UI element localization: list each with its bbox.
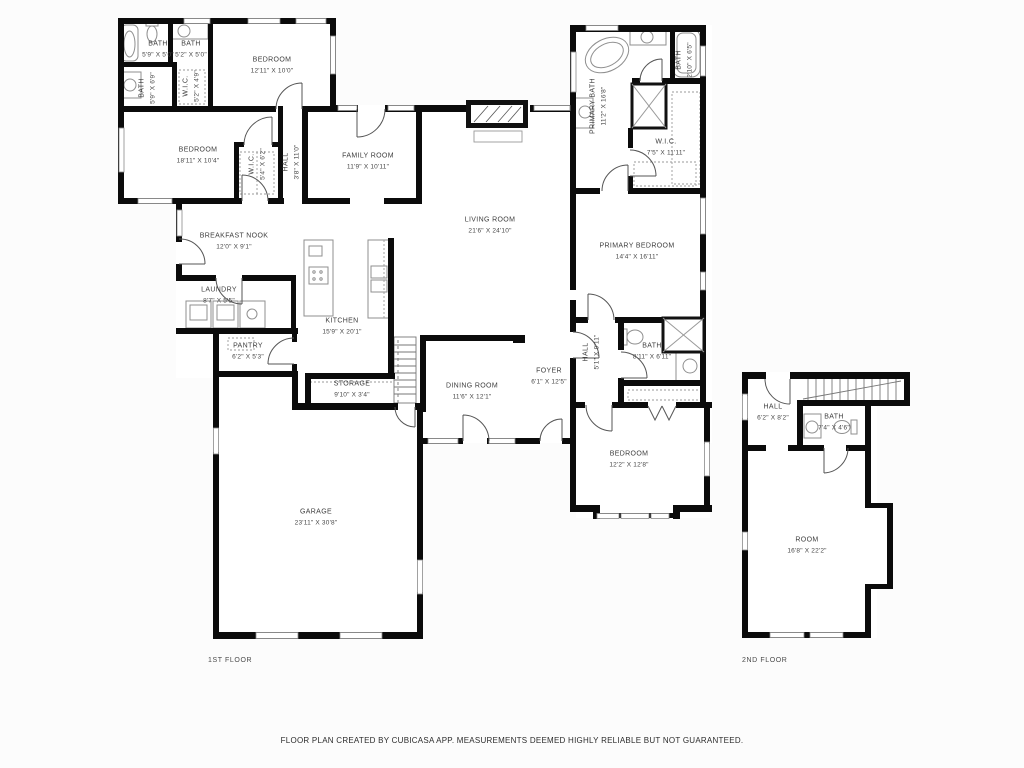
floor1-stairs — [394, 337, 416, 403]
floor-plan-drawing — [0, 0, 1024, 768]
room-label-bedroom-1: BEDROOM 12'11" X 10'0" — [251, 56, 294, 77]
room-label-family-room: FAMILY ROOM 11'9" X 10'11" — [342, 152, 394, 173]
room-label-bath-5: BATH 8'11" X 6'11" — [633, 342, 671, 363]
room-label-hall-1: HALL 3'8" X 11'0" — [282, 144, 303, 179]
room-label-room-2f: ROOM 16'8" X 22'2" — [787, 536, 826, 557]
disclaimer-text: FLOOR PLAN CREATED BY CUBICASA APP. MEAS… — [0, 736, 1024, 745]
room-label-living-room: LIVING ROOM 21'6" X 24'10" — [465, 216, 516, 237]
room-label-wic-1: W.I.C. 5'2" X 4'9" — [182, 70, 203, 102]
room-label-hall-2f: HALL 6'2" X 8'2" — [757, 403, 789, 424]
room-label-bath-2f: BATH 7'4" X 4'6" — [818, 413, 850, 434]
fireplace — [466, 100, 528, 142]
room-label-bath-2: BATH 5'2" X 5'0" — [175, 40, 207, 61]
floor2-caption: 2ND FLOOR — [742, 657, 787, 664]
room-label-laundry: LAUNDRY 8'7" X 5'5" — [201, 286, 237, 307]
room-label-wic-2: W.I.C. 5'4" X 6'2" — [248, 148, 269, 180]
room-label-bedroom-2: BEDROOM 18'11" X 10'4" — [177, 146, 220, 167]
room-label-primary-bedroom: PRIMARY BEDROOM 14'4" X 16'11" — [599, 242, 674, 263]
room-label-breakfast-nook: BREAKFAST NOOK 12'0" X 9'1" — [200, 232, 269, 253]
room-label-bath-1: BATH 5'9" X 5'0" — [142, 40, 174, 61]
room-label-kitchen: KITCHEN 15'9" X 20'1" — [322, 317, 361, 338]
room-label-bath-3: BATH 5'9" X 6'9" — [138, 72, 159, 104]
floor1-caption: 1ST FLOOR — [208, 657, 252, 664]
room-label-pantry: PANTRY 6'2" X 5'3" — [232, 342, 264, 363]
room-label-hall-2: HALL 5'1" X 9'11" — [582, 334, 603, 369]
room-label-garage: GARAGE 23'11" X 30'8" — [295, 508, 338, 529]
room-label-dining-room: DINING ROOM 11'6" X 12'1" — [446, 382, 498, 403]
room-label-bedroom-3: BEDROOM 12'2" X 12'8" — [609, 450, 648, 471]
room-label-foyer: FOYER 6'1" X 12'5" — [531, 367, 567, 388]
room-label-storage: STORAGE 9'10" X 3'4" — [334, 380, 371, 401]
floor-plan-page: { "page": { "background": "#fcfcfc", "fo… — [0, 0, 1024, 768]
room-label-wic-3: W.I.C. 7'5" X 11'11" — [647, 138, 685, 159]
room-label-bath-4: BATH 2'10" X 6'5" — [675, 42, 696, 78]
room-label-primary-bath: PRIMARY BATH 11'2" X 16'8" — [589, 78, 610, 134]
